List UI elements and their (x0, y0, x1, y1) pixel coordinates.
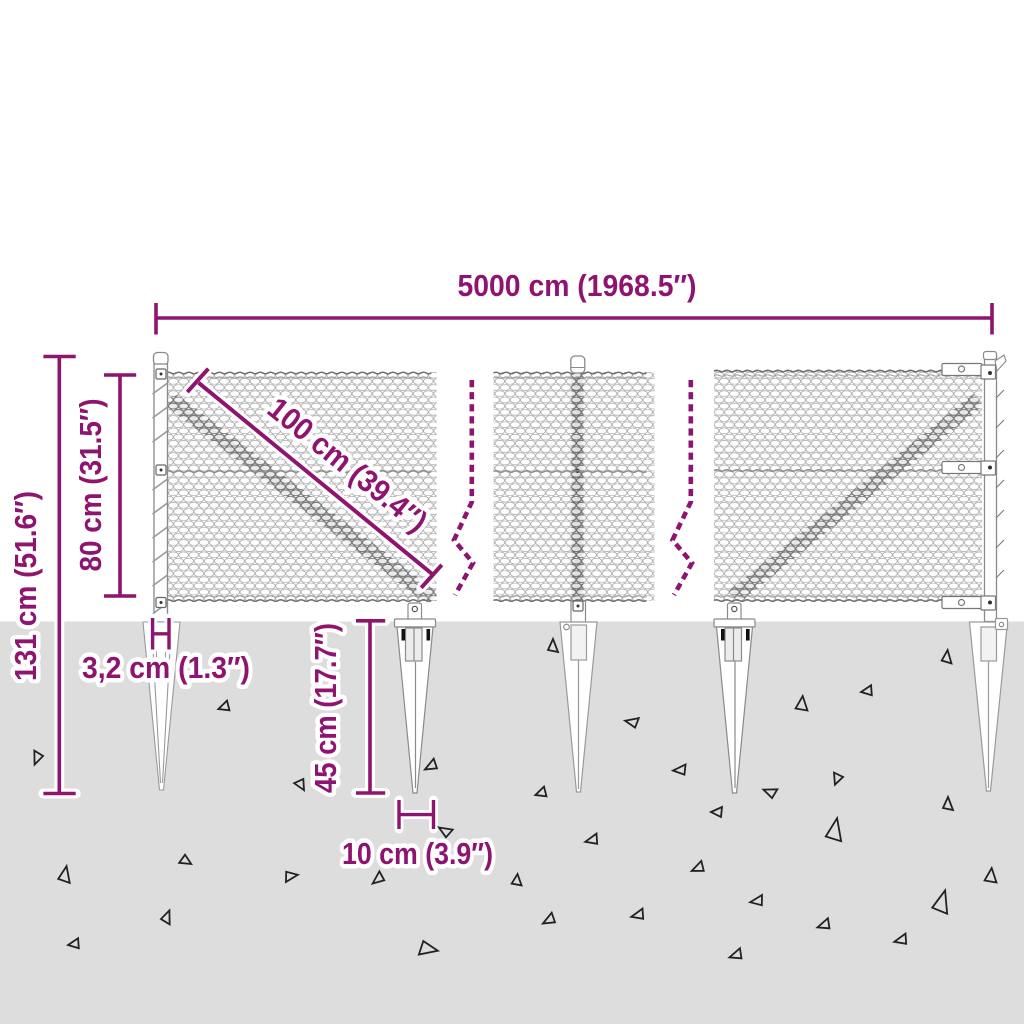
svg-text:3,2 cm (1.3″): 3,2 cm (1.3″) (82, 650, 250, 685)
svg-text:5000 cm (1968.5″): 5000 cm (1968.5″) (458, 268, 697, 303)
svg-text:10 cm (3.9″): 10 cm (3.9″) (342, 836, 493, 871)
svg-text:45 cm (17.7″): 45 cm (17.7″) (308, 623, 343, 793)
svg-text:131 cm (51.6″): 131 cm (51.6″) (8, 491, 43, 681)
svg-text:80 cm (31.5″): 80 cm (31.5″) (73, 399, 108, 572)
